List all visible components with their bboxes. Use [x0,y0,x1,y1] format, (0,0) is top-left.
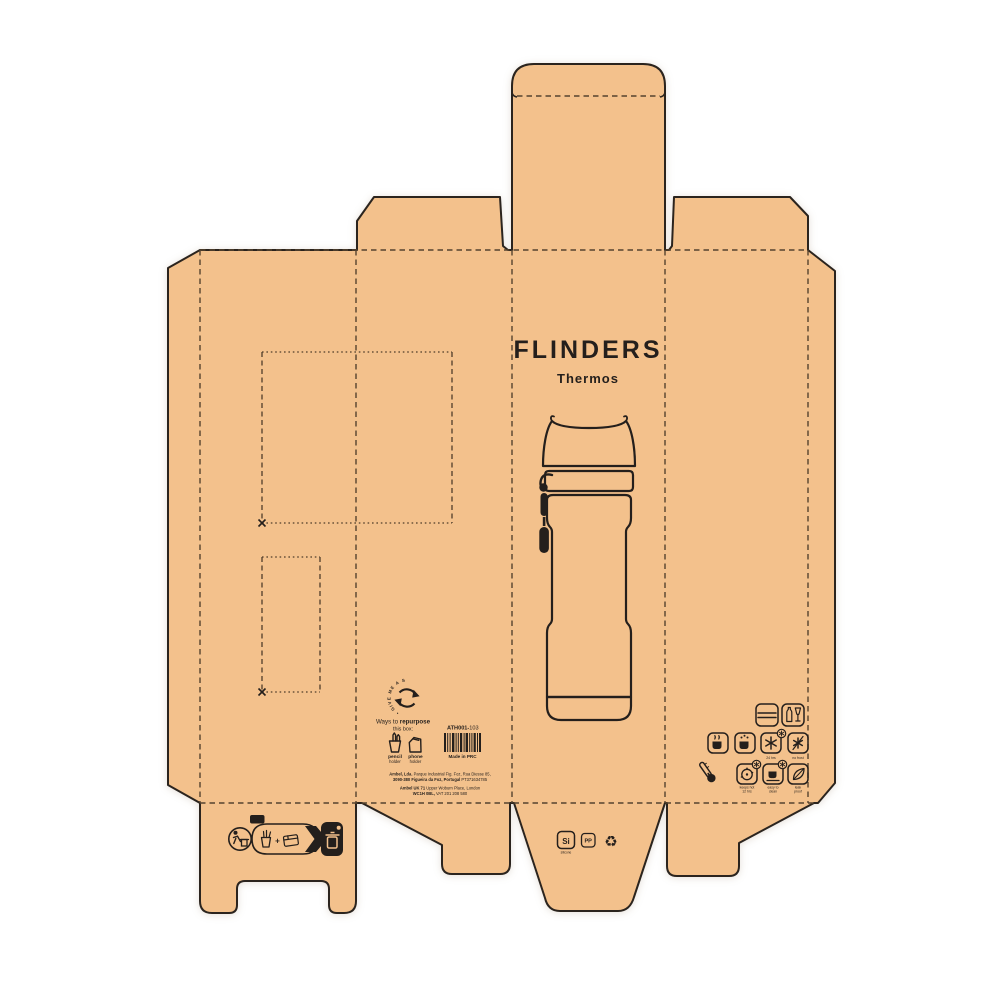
banner-plus: + [275,837,280,846]
pap-tag: PAP [250,815,265,824]
pap-label: PAP [253,817,262,822]
silicone-label: silicone [561,851,572,855]
svg-text:Ambel UK 71 Upper Woburn Place: Ambel UK 71 Upper Woburn Place, London [400,786,481,791]
svg-text:Ambel, Lda. Parque Industrial: Ambel, Lda. Parque Industrial Fig. Foz, … [389,772,490,777]
product-subtitle: Thermos [557,371,619,386]
frost-label: no frost [792,756,803,760]
pencil-holder-sublabel: holder [389,759,401,764]
recycle-symbol: ♻ [604,834,617,851]
board-silhouette [168,64,835,913]
bin-icon [321,822,343,856]
clean-label-2: clean [769,790,777,794]
repurpose-heading: Ways to repurpose [376,719,431,726]
dieline-board [168,64,835,913]
hot-label-2: 12 hrs [742,790,752,794]
svg-text:3090-380 Figueira da Foz, Port: 3090-380 Figueira da Foz, Portugal PT371… [393,777,488,782]
packaging-dieline-screenshot: FLINDERS Thermos [0,0,1000,1000]
repurpose-heading-line2: this box: [393,727,413,733]
cold-24h-label: 24 hrs [766,756,776,760]
brand-title: FLINDERS [514,336,663,364]
pp-code: PP [584,839,592,845]
svg-text:WC1H 0BL, VAT 201 208 580: WC1H 0BL, VAT 201 208 580 [413,791,468,796]
phone-holder-sublabel: holder [410,759,422,764]
dieline-canvas: FLINDERS Thermos [0,0,1000,1000]
leak-label-2: proof [794,790,802,794]
sku-code: ATH001-103 [447,726,479,732]
silicone-code: Si [562,837,570,846]
origin-label: Made in PRC [448,754,477,759]
